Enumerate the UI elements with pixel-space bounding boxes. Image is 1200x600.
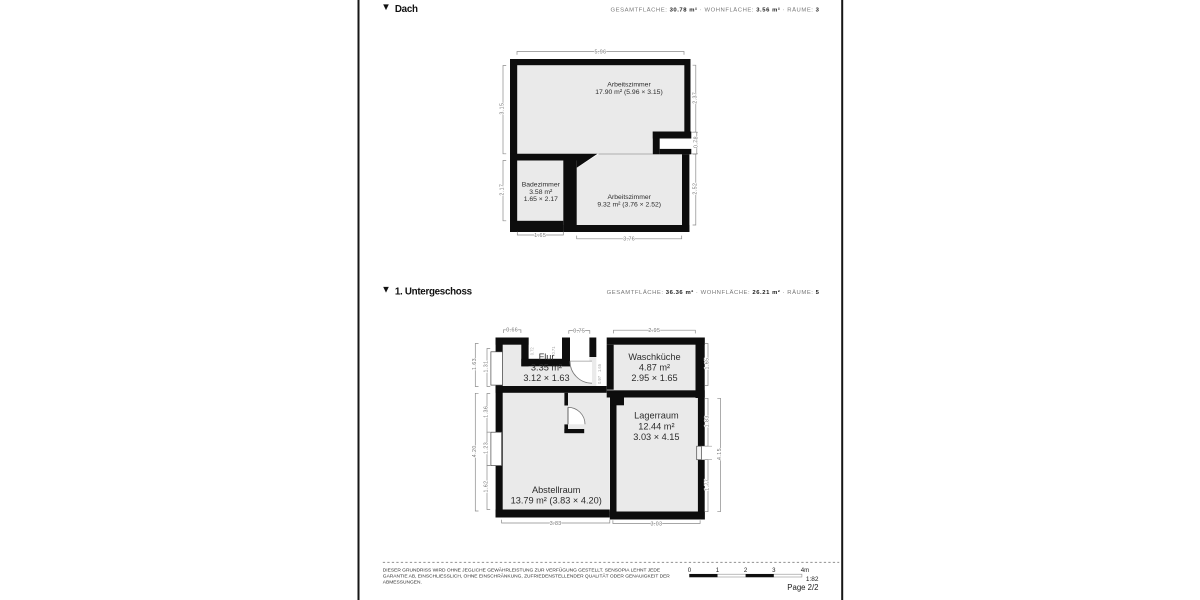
svg-text:3.15: 3.15 bbox=[500, 103, 506, 115]
svg-text:3.58 m²: 3.58 m² bbox=[529, 189, 553, 196]
svg-text:0: 0 bbox=[688, 567, 692, 574]
svg-text:1.62: 1.62 bbox=[484, 481, 490, 493]
svg-text:1.31: 1.31 bbox=[484, 361, 490, 373]
svg-text:3.12 × 1.63: 3.12 × 1.63 bbox=[523, 373, 569, 383]
svg-text:1.63: 1.63 bbox=[472, 358, 478, 370]
svg-text:3.03 × 4.15: 3.03 × 4.15 bbox=[633, 432, 679, 442]
svg-text:2.95: 2.95 bbox=[648, 328, 660, 334]
svg-text:GESAMTFLÄCHE: 36.36 m² · WOHNF: GESAMTFLÄCHE: 36.36 m² · WOHNFLÄCHE: 26.… bbox=[607, 289, 820, 296]
svg-text:4.87 m²: 4.87 m² bbox=[639, 363, 670, 373]
svg-text:Lagerraum: Lagerraum bbox=[634, 411, 679, 421]
svg-text:Flur: Flur bbox=[539, 352, 555, 362]
svg-text:Page 2/2: Page 2/2 bbox=[787, 583, 818, 592]
svg-text:Arbeitszimmer: Arbeitszimmer bbox=[607, 82, 651, 89]
svg-text:Waschküche: Waschküche bbox=[628, 352, 680, 362]
svg-text:1:82: 1:82 bbox=[806, 576, 819, 583]
svg-text:1.23: 1.23 bbox=[484, 442, 490, 454]
svg-text:1.65: 1.65 bbox=[597, 363, 602, 372]
svg-text:DIESER GRUNDRISS WIRD OHNE JEG: DIESER GRUNDRISS WIRD OHNE JEGLICHE GEWÄ… bbox=[383, 567, 661, 574]
svg-text:2.37: 2.37 bbox=[692, 92, 698, 104]
svg-text:1.65: 1.65 bbox=[534, 233, 546, 239]
svg-text:1.36: 1.36 bbox=[484, 406, 490, 418]
svg-text:0.66: 0.66 bbox=[506, 328, 518, 334]
svg-text:1.83: 1.83 bbox=[705, 415, 711, 427]
svg-text:GARANTIE AB, EINSCHLIESSLICH,: GARANTIE AB, EINSCHLIESSLICH, OHNE EINSC… bbox=[383, 573, 671, 580]
svg-text:3.35 m²: 3.35 m² bbox=[531, 363, 562, 373]
svg-text:Dach: Dach bbox=[395, 4, 418, 15]
svg-text:1. Untergeschoss: 1. Untergeschoss bbox=[395, 287, 473, 298]
svg-text:0.97: 0.97 bbox=[597, 375, 602, 384]
svg-text:1.77: 1.77 bbox=[705, 479, 711, 491]
svg-text:5.96: 5.96 bbox=[595, 49, 607, 55]
svg-text:3.76: 3.76 bbox=[623, 237, 635, 243]
svg-text:0.72: 0.72 bbox=[530, 347, 535, 356]
svg-text:12.44 m²: 12.44 m² bbox=[638, 421, 674, 431]
svg-text:Arbeitszimmer: Arbeitszimmer bbox=[607, 194, 651, 201]
svg-text:3.83: 3.83 bbox=[550, 521, 562, 527]
svg-text:17.90 m² (5.96 × 3.15): 17.90 m² (5.96 × 3.15) bbox=[595, 89, 662, 96]
svg-text:2.52: 2.52 bbox=[692, 183, 698, 195]
svg-text:4.15: 4.15 bbox=[717, 448, 723, 460]
svg-text:13.79 m² (3.83 × 4.20): 13.79 m² (3.83 × 4.20) bbox=[511, 496, 602, 506]
svg-text:2.95 × 1.65: 2.95 × 1.65 bbox=[631, 373, 677, 383]
svg-text:2.17: 2.17 bbox=[500, 184, 506, 196]
svg-text:0.75: 0.75 bbox=[573, 328, 585, 334]
svg-text:Badezimmer: Badezimmer bbox=[522, 182, 561, 189]
svg-text:1.65 × 2.17: 1.65 × 2.17 bbox=[524, 196, 558, 203]
svg-text:9.32 m² (3.76 × 2.52): 9.32 m² (3.76 × 2.52) bbox=[597, 202, 661, 209]
svg-text:GESAMTFLÄCHE: 30.78 m² · WOHNF: GESAMTFLÄCHE: 30.78 m² · WOHNFLÄCHE: 3.5… bbox=[611, 7, 820, 14]
svg-text:ABMESSUNGEN.: ABMESSUNGEN. bbox=[383, 580, 422, 586]
svg-text:0.78: 0.78 bbox=[693, 136, 699, 148]
svg-text:4.20: 4.20 bbox=[472, 445, 478, 457]
svg-text:Abstellraum: Abstellraum bbox=[532, 485, 581, 495]
svg-text:4m: 4m bbox=[801, 567, 809, 574]
svg-text:3.03: 3.03 bbox=[651, 521, 663, 527]
svg-text:1.65: 1.65 bbox=[705, 358, 711, 370]
